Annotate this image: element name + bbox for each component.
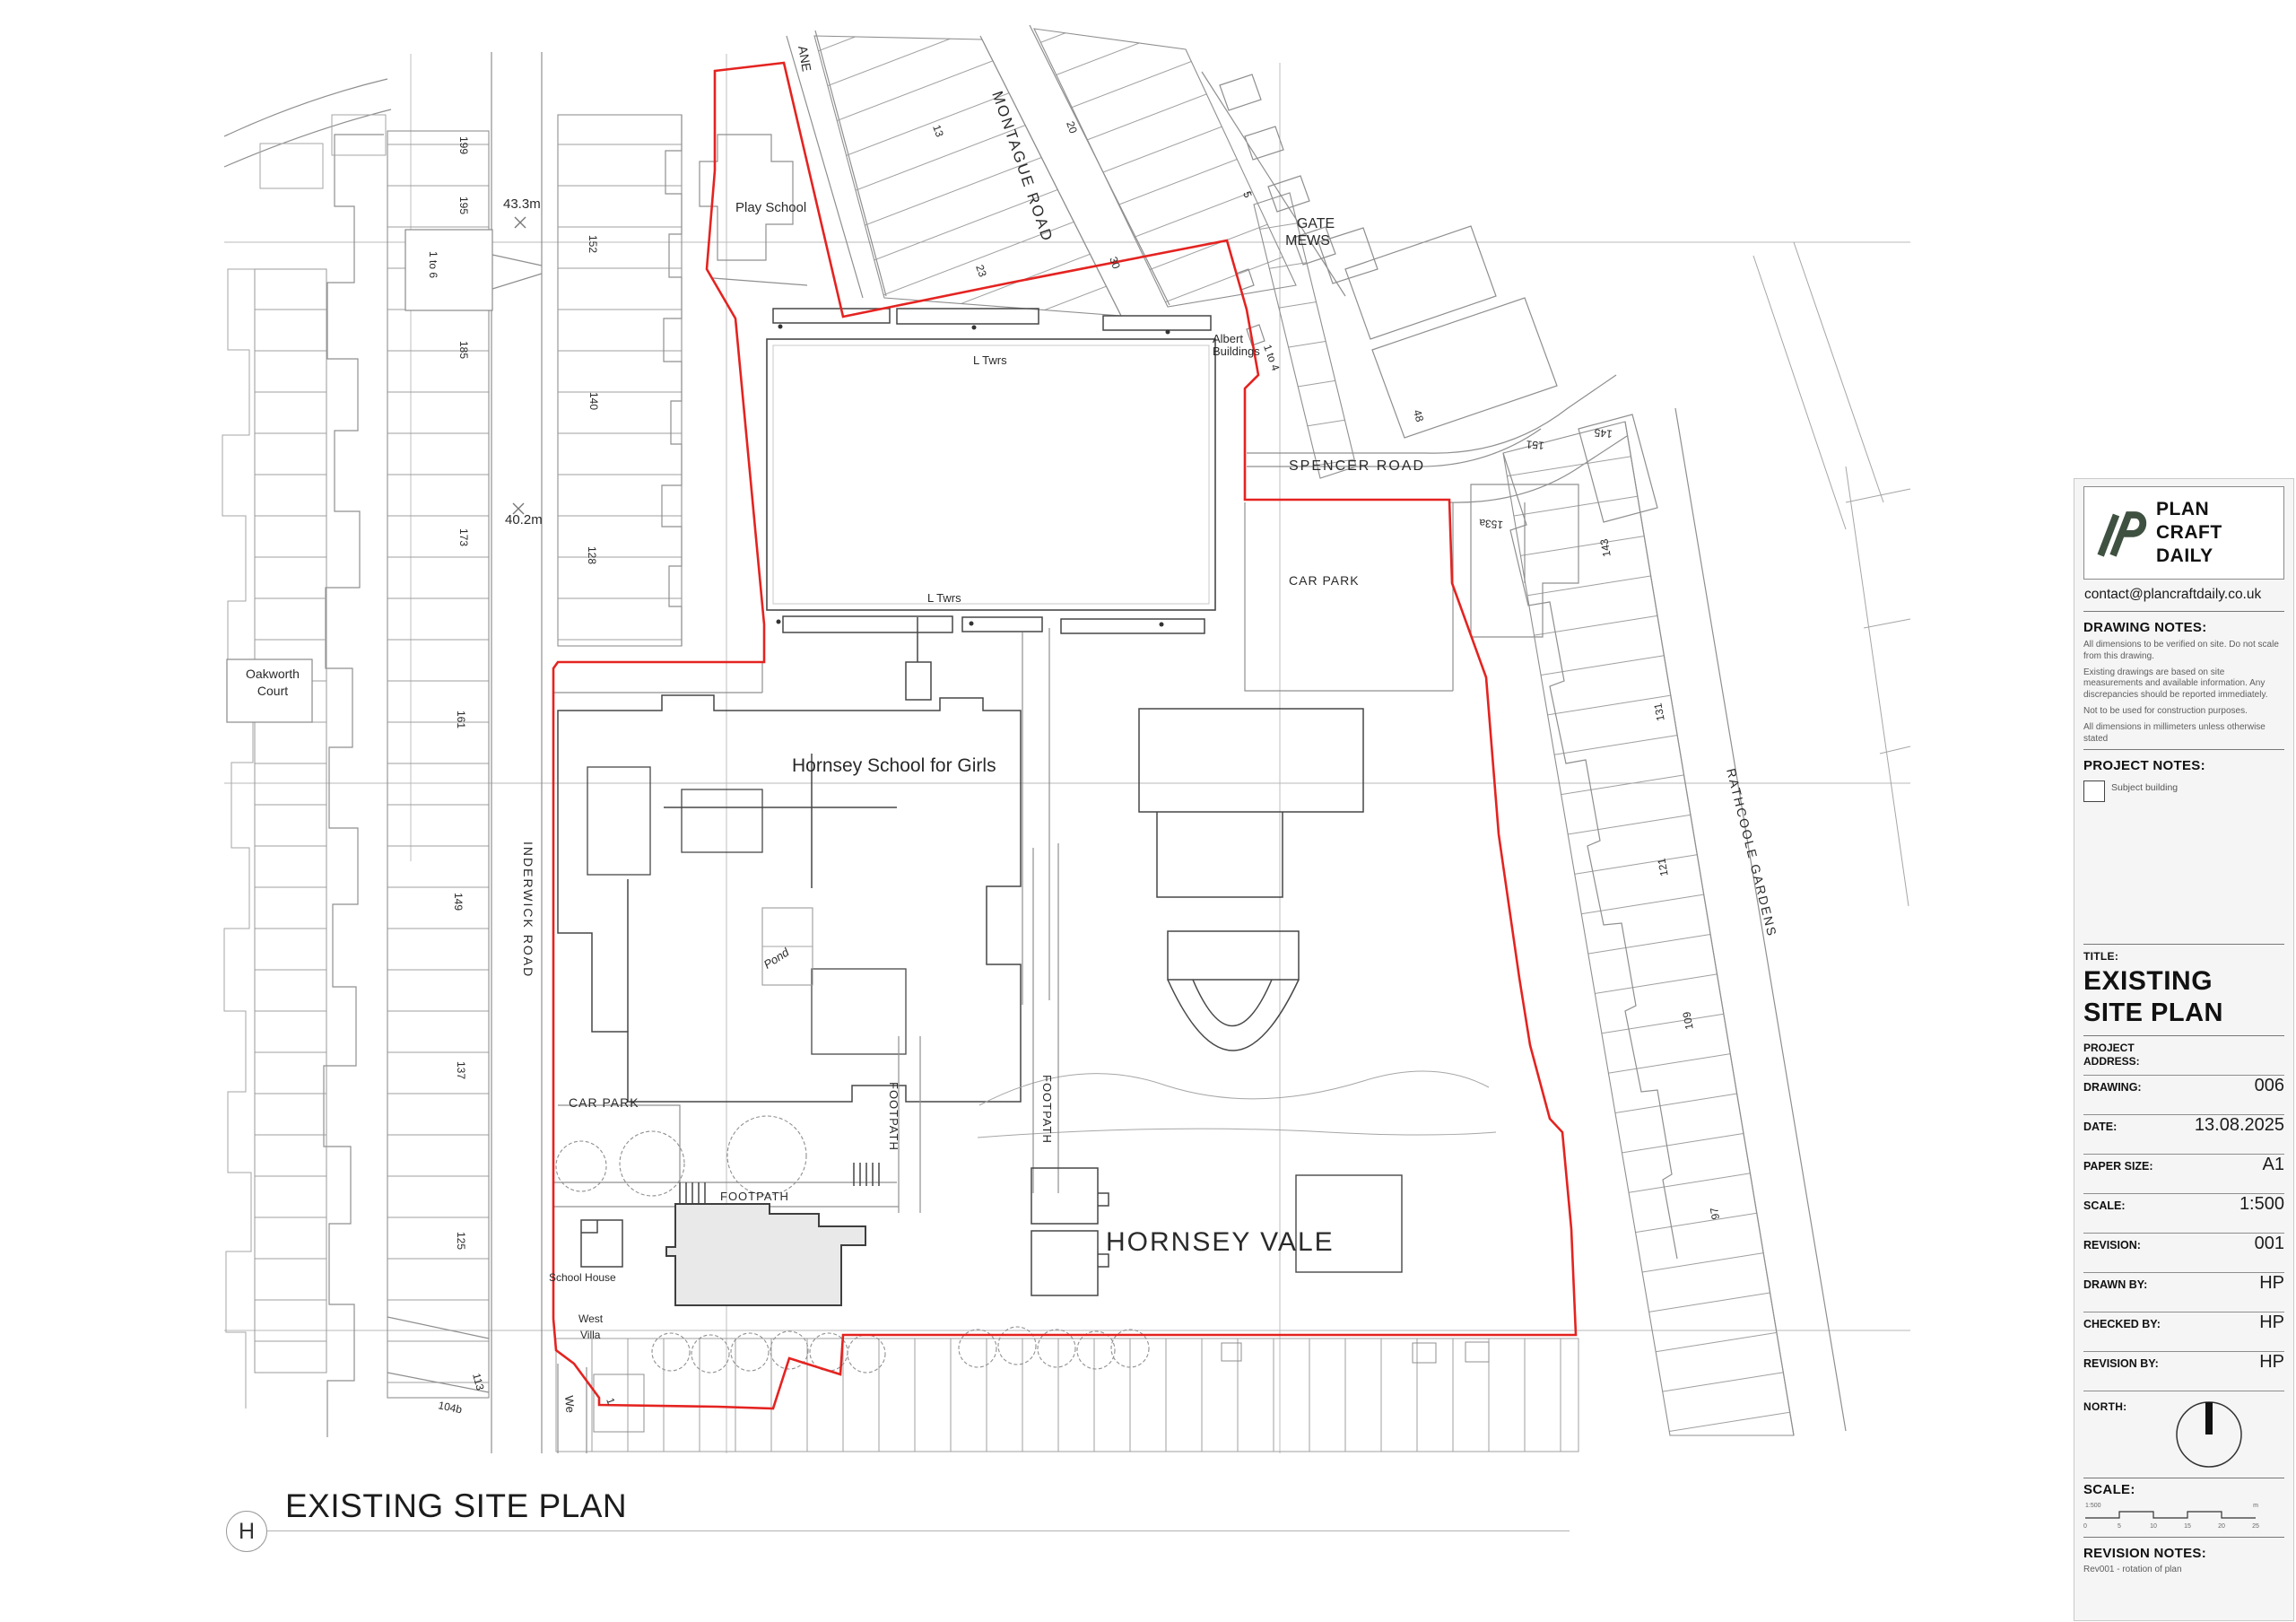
map-label-play-school: Play School (735, 200, 806, 215)
scale-unit: m (2253, 1503, 2258, 1509)
map-label-oakworth-2: Court (257, 684, 288, 698)
map-label-125: 125 (455, 1232, 467, 1250)
project-notes-heading: PROJECT NOTES: (2083, 758, 2284, 773)
map-label-hornsey-vale: HORNSEY VALE (1106, 1227, 1335, 1257)
logo-line1: PLAN (2156, 498, 2222, 521)
map-label-152: 152 (587, 235, 599, 253)
map-label-195: 195 (457, 196, 470, 214)
map-label-149: 149 (452, 893, 465, 911)
field-revision-by: REVISION BY: HP (2083, 1352, 2284, 1391)
logo-wordmark: PLAN CRAFT DAILY (2156, 498, 2222, 568)
map-label-oakworth-1: Oakworth (246, 667, 300, 681)
map-label-l-twrs-1: L Twrs (973, 353, 1007, 367)
towers-block (767, 339, 1215, 610)
field-rows: DRAWING: 006 DATE: 13.08.2025 PAPER SIZE… (2083, 1075, 2284, 1391)
scale-ratio: 1:500 (2085, 1503, 2101, 1509)
map-label-rathcoole: RATHCOOLE GARDENS (1724, 767, 1779, 938)
north-label: NORTH: (2083, 1400, 2126, 1413)
drawing-note: All dimensions in millimeters unless oth… (2083, 722, 2284, 746)
map-label-car-park-west: CAR PARK (569, 1095, 639, 1110)
site-plan-sheet: { "colors": { "boundary_red": "#e42320",… (0, 0, 2296, 1622)
map-label-hornsey-school: Hornsey School for Girls (792, 755, 996, 776)
north-section: NORTH: (2083, 1391, 2284, 1478)
map-label-185: 185 (457, 341, 470, 359)
map-label-footpath-v2: FOOTPATH (1040, 1075, 1054, 1144)
drawing-notes-heading: DRAWING NOTES: (2083, 620, 2284, 635)
map-label-128: 128 (586, 546, 598, 564)
map-label-153a: 153a (1478, 517, 1503, 531)
pond-structure (762, 908, 813, 985)
map-label-151: 151 (1526, 438, 1544, 452)
map-label-161: 161 (455, 711, 467, 728)
logo: PLAN CRAFT DAILY (2083, 486, 2284, 580)
map-label-spencer-road: SPENCER ROAD (1289, 458, 1425, 474)
map-label-104b: 104b (437, 1399, 463, 1416)
subject-building-label: Subject building (2111, 782, 2178, 793)
map-label-west-villa-1: West (578, 1312, 604, 1325)
map-label-l-twrs-2: L Twrs (927, 591, 961, 605)
title-block: PLAN CRAFT DAILY contact@plancraftdaily.… (2074, 478, 2294, 1621)
map-label-199: 199 (457, 136, 470, 154)
map-label-footpath-v1: FOOTPATH (887, 1082, 900, 1151)
map-label-30: 30 (1107, 255, 1123, 271)
map-label-140: 140 (587, 392, 600, 410)
svg-text:10: 10 (2150, 1523, 2157, 1530)
field-paper-size: PAPER SIZE: A1 (2083, 1155, 2284, 1194)
revision-notes-heading: REVISION NOTES: (2083, 1546, 2284, 1561)
map-label-1to4: 1 to 4 (1261, 343, 1283, 372)
sheet-title: EXISTING SITE PLAN (285, 1487, 627, 1525)
map-label-1to6: 1 to 6 (427, 251, 439, 278)
map-label-48: 48 (1411, 408, 1426, 423)
contact-email: contact@plancraftdaily.co.uk (2084, 587, 2284, 603)
field-checked-by: CHECKED BY: HP (2083, 1312, 2284, 1352)
logo-line2: CRAFT (2156, 521, 2222, 545)
map-label-car-park-east: CAR PARK (1289, 573, 1360, 588)
field-drawn-by: DRAWN BY: HP (2083, 1273, 2284, 1312)
map-label-footpath-h: FOOTPATH (720, 1190, 789, 1203)
field-scale: SCALE: 1:500 (2083, 1194, 2284, 1234)
map-label-west-villa-2: Villa (580, 1329, 601, 1341)
revision-note: Rev001 - rotation of plan (2083, 1565, 2284, 1574)
svg-text:25: 25 (2252, 1523, 2259, 1530)
scale-ticks: 0 5 10 15 20 25 (2083, 1523, 2259, 1530)
subject-building (666, 1204, 865, 1305)
scale-label: SCALE: (2083, 1482, 2284, 1497)
plancraftdaily-logo-icon (2090, 501, 2149, 564)
drawing-note: Not to be used for construction purposes… (2083, 706, 2284, 718)
subject-building-swatch (2083, 780, 2105, 802)
map-label-173: 173 (457, 528, 470, 546)
map-label-lane: ANE (796, 45, 814, 73)
map-label-pond: Pond (761, 945, 792, 972)
map-label-gate-mews-1: GATE (1297, 216, 1335, 231)
svg-text:5: 5 (2118, 1523, 2121, 1530)
map-label-school-house: School House (549, 1271, 616, 1284)
map-label-inderwick-road: INDERWICK ROAD (521, 842, 535, 978)
map-label-we: We (562, 1395, 578, 1413)
drawing-note: All dimensions to be verified on site. D… (2083, 640, 2284, 663)
svg-text:20: 20 (2218, 1523, 2225, 1530)
legend-row: Subject building (2083, 780, 2284, 802)
drawing-title-line2: SITE PLAN (2083, 998, 2284, 1028)
title-label: TITLE: (2083, 950, 2284, 963)
svg-text:0: 0 (2083, 1523, 2087, 1530)
field-date: DATE: 13.08.2025 (2083, 1115, 2284, 1155)
svg-text:15: 15 (2184, 1523, 2191, 1530)
north-needle (2205, 1402, 2213, 1435)
map-label-level-40: 40.2m (505, 512, 543, 528)
map-label-albert-1: Albert (1213, 332, 1243, 345)
site-plan-map: Play School ANE MONTAGUE ROAD GATE MEWS … (0, 0, 2296, 1622)
detail-marker: H (226, 1511, 267, 1552)
sheet-title-rule (267, 1530, 1570, 1531)
field-drawing: DRAWING: 006 (2083, 1076, 2284, 1115)
map-label-albert-2: Buildings (1213, 344, 1260, 358)
project-address-label: PROJECT ADDRESS: (2083, 1042, 2164, 1068)
map-label-gate-mews-2: MEWS (1285, 233, 1330, 249)
map-label-20: 20 (1064, 119, 1080, 135)
drawing-note: Existing drawings are based on site meas… (2083, 667, 2284, 702)
drawing-title-line1: EXISTING (2083, 966, 2284, 997)
map-label-145: 145 (1594, 426, 1613, 440)
scale-bar: 1:500 m 0 5 10 15 20 25 (2083, 1500, 2286, 1532)
map-label-level-43: 43.3m (503, 196, 541, 212)
map-label-137: 137 (455, 1061, 467, 1079)
logo-line3: DAILY (2156, 545, 2222, 568)
field-revision: REVISION: 001 (2083, 1234, 2284, 1273)
map-label-97: 97 (1708, 1207, 1722, 1221)
